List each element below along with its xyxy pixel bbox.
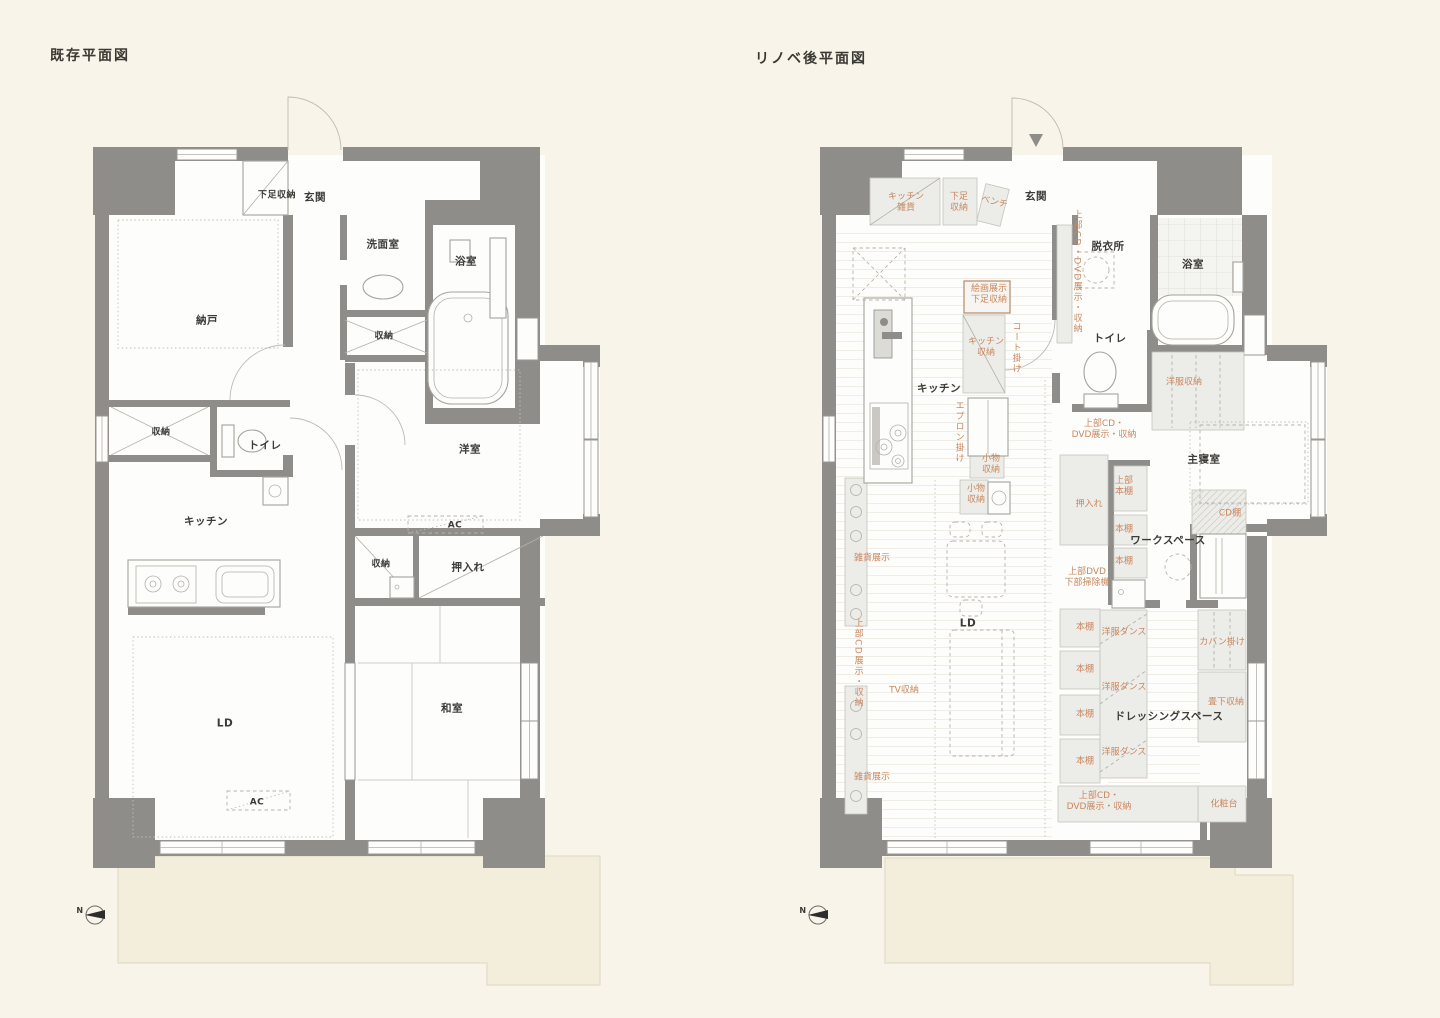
annotation-wardrobe-2: 洋服ダンス bbox=[1102, 682, 1147, 693]
annotation-vanity: 化粧台 bbox=[1210, 799, 1237, 810]
annotation-cd-shelf: CD棚 bbox=[1219, 508, 1241, 519]
entry-door-arc bbox=[288, 97, 341, 150]
annotation-kitchen-goods: キッチン 雑貨 bbox=[888, 192, 924, 215]
room-label-kitchen: キッチン bbox=[917, 382, 961, 395]
room-label-kitchen: キッチン bbox=[184, 515, 228, 528]
compass-icon bbox=[85, 906, 105, 924]
washbasin-icon bbox=[363, 275, 403, 299]
annotation-shoe-storage: 下足 収納 bbox=[950, 192, 968, 215]
room-label-futon-closet: 押入れ bbox=[452, 561, 485, 574]
existing-plan bbox=[85, 97, 600, 985]
compass-north-label: N bbox=[799, 906, 806, 916]
room-label-workspace: ワークスペース bbox=[1130, 534, 1205, 547]
room-label-bathroom: 浴室 bbox=[455, 255, 477, 268]
kitchen-counter-icon bbox=[128, 560, 280, 607]
room-label-master-bedroom: 主寝室 bbox=[1188, 453, 1221, 466]
annotation-apron-hanger: エプロン掛け bbox=[952, 401, 963, 464]
room-label-entrance: 玄関 bbox=[1025, 190, 1047, 203]
annotation-bookshelf-3: 本棚 bbox=[1076, 622, 1094, 633]
room-label-living-dining: LD bbox=[217, 717, 233, 730]
room-label-bathroom: 浴室 bbox=[1182, 258, 1204, 271]
renovated-plan bbox=[808, 98, 1327, 985]
renovated-balcony bbox=[885, 858, 1293, 985]
annotation-cd-display: 上部CD展示・収納 bbox=[851, 618, 862, 708]
annotation-tv-storage: TV収納 bbox=[889, 685, 919, 696]
room-label-entrance: 玄関 bbox=[304, 191, 326, 204]
annotation-bookshelf-6: 本棚 bbox=[1076, 756, 1094, 767]
annotation-small-items-1: 小物 収納 bbox=[982, 454, 1000, 477]
annotation-futon-closet: 押入れ bbox=[1075, 499, 1102, 510]
label-ac-western-room: AC bbox=[448, 520, 463, 531]
room-label-shoe-storage: 下足収納 bbox=[258, 190, 296, 201]
entry-marker-icon bbox=[1029, 134, 1043, 147]
annotation-wardrobe-1: 洋服ダンス bbox=[1102, 627, 1147, 638]
room-label-japanese-room: 和室 bbox=[441, 702, 463, 715]
existing-balcony bbox=[118, 856, 600, 985]
toilet-icon bbox=[1084, 352, 1116, 392]
annotation-bookshelf-2: 本棚 bbox=[1115, 556, 1133, 567]
annotation-small-items-2: 小物 収納 bbox=[967, 484, 985, 507]
annotation-bag-hanger: カバン掛け bbox=[1199, 637, 1244, 648]
annotation-under-tatami: 畳下収納 bbox=[1208, 697, 1244, 708]
annotation-cd-dvd-bottom: 上部CD・ DVD展示・収納 bbox=[1067, 791, 1132, 814]
room-label-washroom: 洗面室 bbox=[367, 238, 400, 251]
room-label-toilet: トイレ bbox=[1094, 332, 1127, 345]
bath-tile-floor bbox=[1158, 218, 1242, 296]
room-label-storage-hall: 収納 bbox=[151, 427, 170, 438]
annotation-wardrobe-3: 洋服ダンス bbox=[1102, 747, 1147, 758]
label-ac-ld: AC bbox=[250, 797, 265, 808]
annotation-bookshelf-1: 本棚 bbox=[1115, 524, 1133, 535]
annotation-kitchen-storage: キッチン 収納 bbox=[968, 337, 1004, 360]
room-label-dressing-room: 脱衣所 bbox=[1092, 240, 1125, 253]
floorplan-canvas: 既存平面図 リノベ後平面図 下足収納 玄関 洗面室 浴室 収納 納戸 収納 トイ… bbox=[0, 0, 1440, 1018]
annotation-art-display: 絵画展示 下足収納 bbox=[971, 284, 1007, 307]
room-label-storage-closet: 収納 bbox=[371, 559, 390, 570]
room-label-storage-bath: 収納 bbox=[374, 331, 393, 342]
room-label-western-room: 洋室 bbox=[459, 443, 481, 456]
annotation-goods-display-2: 雑貨展示 bbox=[854, 772, 890, 783]
desk-icon bbox=[1200, 534, 1246, 598]
compass-icon bbox=[808, 906, 828, 924]
bathtub-icon bbox=[1152, 295, 1234, 345]
annotation-upper-bookshelf: 上部 本棚 bbox=[1115, 476, 1133, 499]
plan-title-renovated: リノベ後平面図 bbox=[755, 48, 867, 68]
toilet-icon bbox=[222, 425, 234, 457]
plan-title-existing: 既存平面図 bbox=[50, 45, 130, 65]
room-label-toilet: トイレ bbox=[249, 439, 282, 452]
annotation-clothes-storage: 洋服収納 bbox=[1166, 377, 1202, 388]
compass-north-label: N bbox=[76, 906, 83, 916]
room-label-living-dining: LD bbox=[960, 617, 976, 630]
annotation-cd-dvd-upper: 上部CD・ DVD展示・収納 bbox=[1072, 419, 1137, 442]
annotation-dvd-vacuum: 上部DVD 下部掃除機 bbox=[1064, 567, 1109, 590]
annotation-goods-display-1: 雑貨展示 bbox=[854, 553, 890, 564]
room-label-dressing-space: ドレッシングスペース bbox=[1115, 710, 1224, 723]
annotation-bookshelf-4: 本棚 bbox=[1076, 664, 1094, 675]
annotation-bookshelf-5: 本棚 bbox=[1076, 709, 1094, 720]
annotation-coat-hanger: コート掛け bbox=[1009, 322, 1020, 375]
room-label-storeroom: 納戸 bbox=[196, 314, 218, 327]
annotation-cd-dvd-corridor: 上部CD・DVD展示・収納 bbox=[1070, 210, 1081, 335]
